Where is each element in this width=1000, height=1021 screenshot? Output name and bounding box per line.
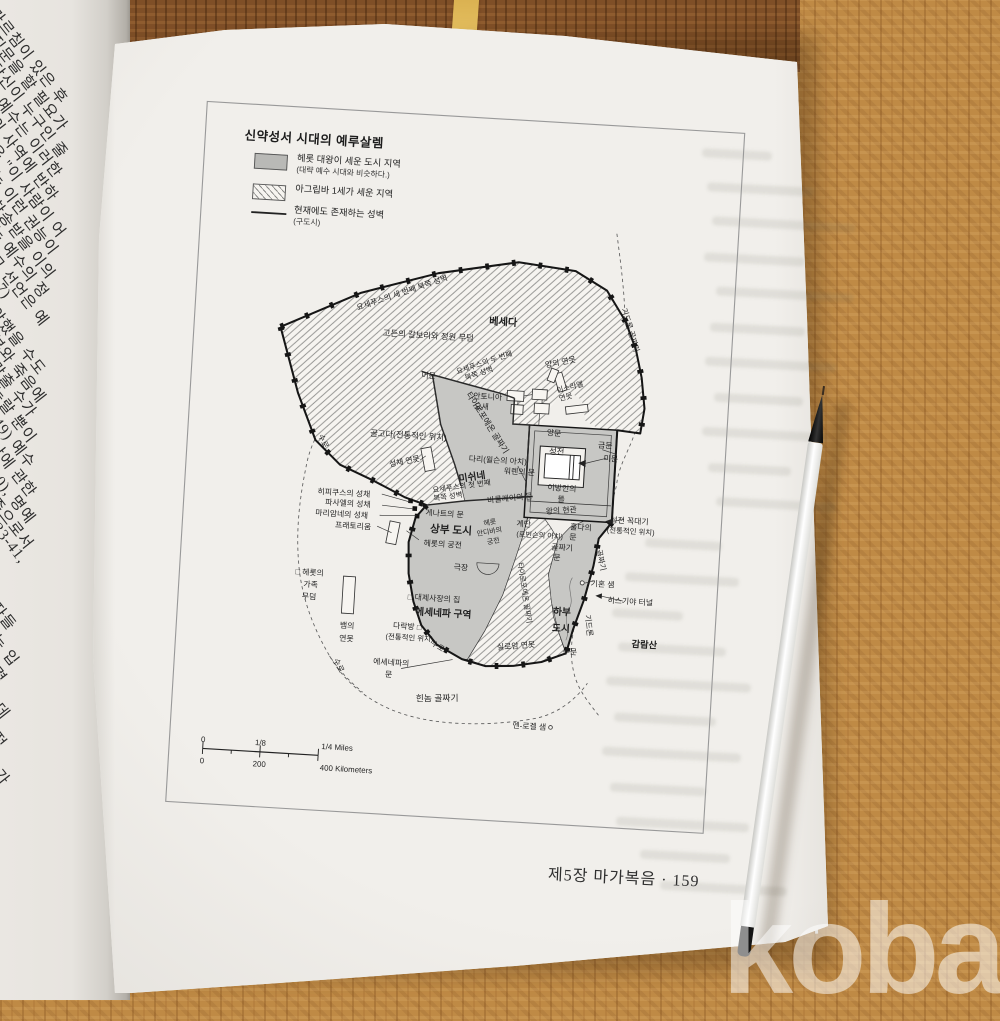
map-label: 문 (553, 553, 561, 562)
map-label: 에세네파의 (373, 656, 410, 668)
map-label: 200 (252, 759, 266, 769)
map-label: 골짜기 (551, 543, 573, 553)
map-label: 1/8 (255, 738, 267, 748)
left-page-text-line: 관 (0, 812, 3, 838)
map-label: 뱀의 (340, 620, 355, 631)
map-label: 0 (201, 735, 207, 744)
map-label: 기드론 (583, 614, 594, 637)
map-label: 1/4 Miles (321, 742, 353, 753)
map-label: 가족 (303, 580, 318, 590)
map-label: 힌놈 골짜기 (416, 692, 459, 703)
hezekiah-arrow (595, 593, 602, 599)
map-label: 골짜기 (594, 549, 608, 572)
left-page-text-line: 는 데 (0, 682, 16, 723)
map-label: 0 (200, 756, 206, 765)
left-page-text-line: 있 (0, 845, 3, 871)
map-label: 금문 (598, 441, 613, 451)
map-label: 뜰 (557, 495, 565, 504)
map-label: 워렌의 문 (504, 466, 536, 478)
map-label: 감람산 (631, 638, 658, 651)
left-page-text-line: 제자들 (0, 585, 22, 635)
map-label: (전통적인 위치) (385, 632, 433, 644)
map-label: 하부 (553, 605, 572, 619)
map-label: 어문 (421, 370, 436, 381)
kobay-watermark: kobay (722, 886, 1000, 1014)
map-label: 도시 (552, 622, 571, 635)
serpents-pool (341, 576, 355, 614)
mariamne-tower-square (415, 514, 420, 519)
pen-tip (821, 386, 824, 395)
map-label: 문 (569, 532, 577, 541)
temple-building (544, 454, 581, 480)
map-label: 상부 도시 (430, 522, 473, 537)
enrogel-spring-dot (549, 725, 553, 729)
map-label: 양문 (547, 428, 562, 438)
map-label: 성전 (549, 446, 565, 457)
map-label: 프래토리움 (335, 520, 372, 531)
map-label: 왕의 현관 (545, 504, 577, 516)
jerusalem-map-figure: 신약성서 시대의 예루살렘 헤롯 대왕이 세운 도시 지역 (대략 예수 시대와… (164, 100, 746, 836)
hippicus-tower-square (408, 498, 413, 503)
map-label: (전통적인 위치) (607, 525, 655, 537)
map-label: 미문 (603, 454, 618, 464)
map-label: 문 (385, 670, 393, 679)
map-label: 수로 (331, 657, 346, 674)
map-label: 계단 (516, 518, 531, 529)
map-label: 성전 꼭대기 (610, 514, 649, 526)
map-label: 이방인의 (547, 482, 576, 494)
map-label: 기혼 샘 (590, 578, 614, 589)
map-label: 다락방 □ (393, 620, 422, 632)
map-label: 연못 (339, 634, 354, 644)
left-page-text-line: 의 가 (0, 748, 16, 789)
jerusalem-map-svg: 요세푸스의 세 번째 북쪽 성벽베세다고든의 갈보리와 정원 무덤기드론 골짜기… (164, 100, 746, 836)
map-label: □ 헤롯의 (295, 566, 324, 578)
map-label: 수문 (562, 647, 577, 657)
map-label: 400 Kilometers (320, 763, 373, 775)
map-label: 마리암네의 성채 (315, 507, 368, 520)
map-label: 엔-로겔 샘 (512, 720, 546, 732)
praetorium-rect (386, 521, 400, 545)
map-label: 무덤 (302, 591, 317, 602)
gihon-spring-dot (580, 581, 584, 585)
map-label: 훌다의 (570, 521, 592, 532)
map-label: 히스기야 터널 (607, 595, 653, 608)
phasael-tower-square (412, 506, 417, 511)
map-label: 극장 (453, 562, 468, 573)
